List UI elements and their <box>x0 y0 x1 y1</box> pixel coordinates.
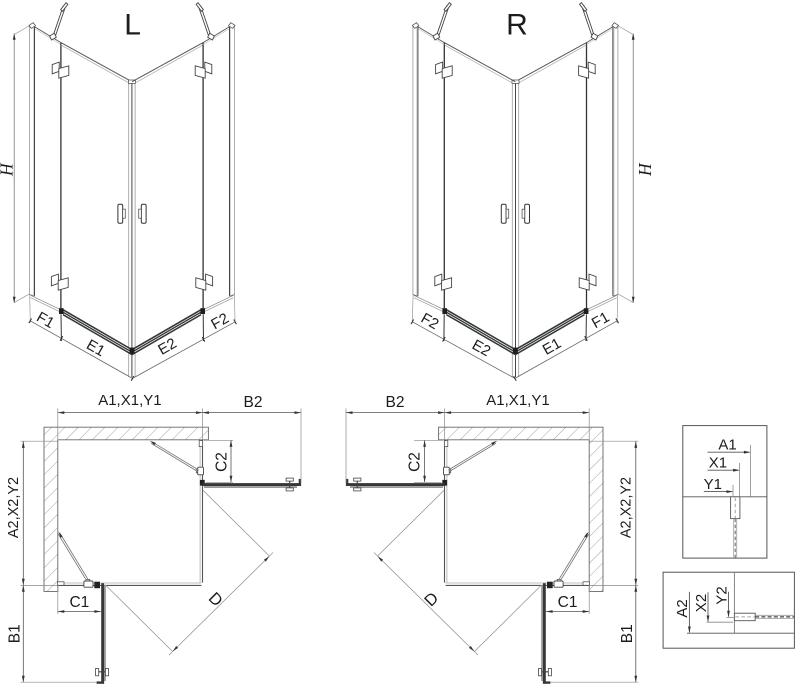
svg-text:H: H <box>635 162 655 177</box>
svg-text:L: L <box>124 9 141 42</box>
svg-text:B2: B2 <box>386 394 405 411</box>
svg-text:R: R <box>506 9 528 42</box>
svg-text:Y2: Y2 <box>713 586 730 604</box>
svg-text:A1,X1,Y1: A1,X1,Y1 <box>486 392 549 409</box>
svg-text:B1: B1 <box>6 624 23 643</box>
svg-text:X2: X2 <box>693 594 710 612</box>
svg-text:Y1: Y1 <box>704 476 722 493</box>
svg-text:X1: X1 <box>709 455 727 472</box>
svg-text:C2: C2 <box>214 452 231 472</box>
svg-text:A1,X1,Y1: A1,X1,Y1 <box>98 392 161 409</box>
svg-text:C2: C2 <box>407 452 424 472</box>
svg-text:B2: B2 <box>244 394 263 411</box>
svg-text:C1: C1 <box>69 594 89 611</box>
svg-text:B1: B1 <box>619 624 636 643</box>
svg-text:C1: C1 <box>558 594 578 611</box>
svg-text:A2,X2,Y2: A2,X2,Y2 <box>619 477 635 538</box>
svg-text:A1: A1 <box>718 437 736 454</box>
svg-text:A2,X2,Y2: A2,X2,Y2 <box>6 477 22 538</box>
svg-text:H: H <box>0 162 17 177</box>
svg-text:A2: A2 <box>674 599 691 617</box>
